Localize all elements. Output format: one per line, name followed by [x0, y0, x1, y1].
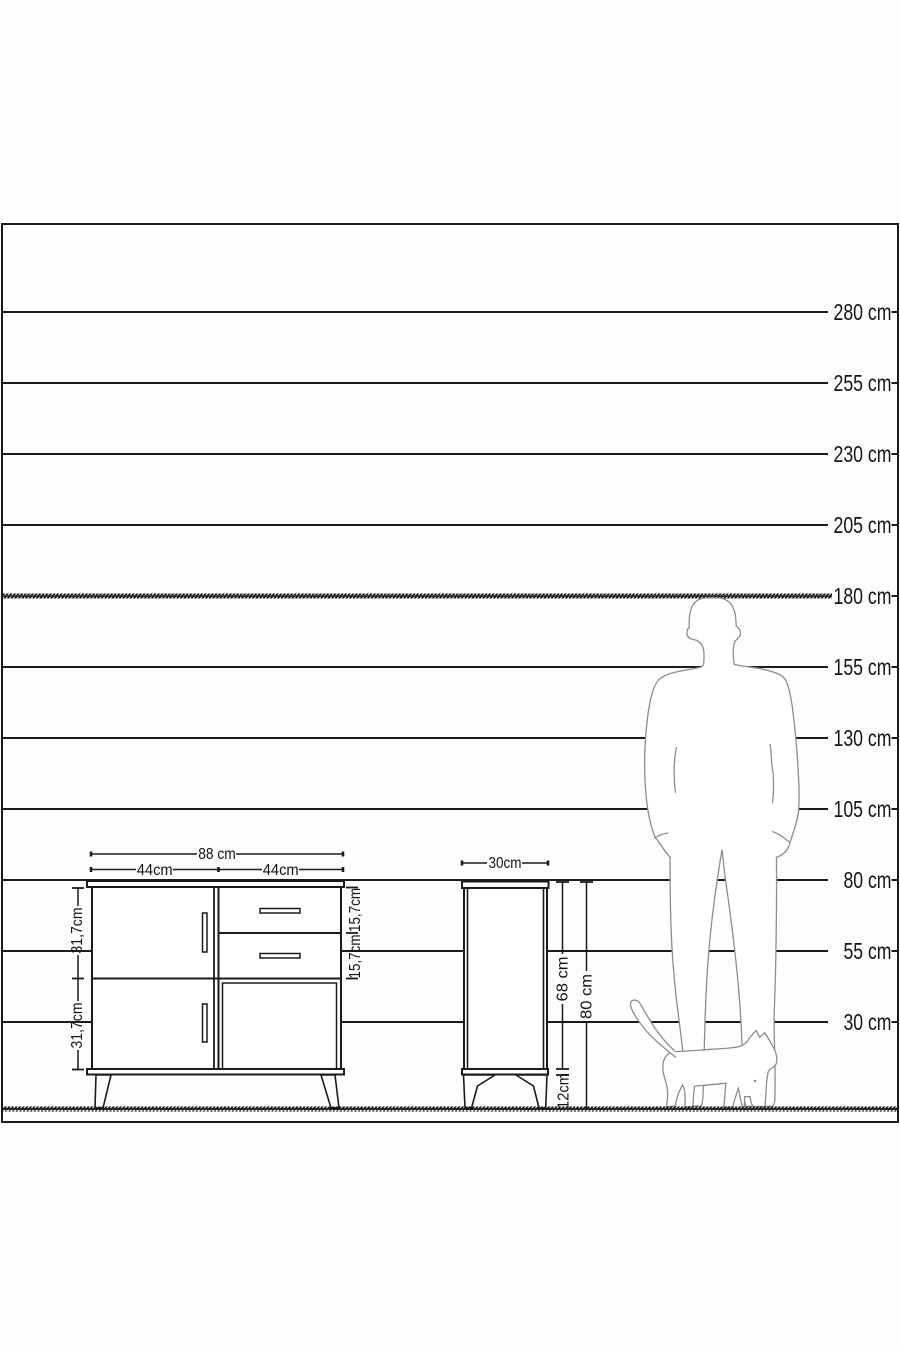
- svg-text:30cm: 30cm: [489, 855, 522, 872]
- svg-text:68 cm: 68 cm: [555, 957, 572, 1002]
- svg-text:255 cm: 255 cm: [834, 370, 892, 396]
- svg-text:80 cm: 80 cm: [579, 974, 596, 1019]
- svg-text:31,7cm: 31,7cm: [69, 908, 86, 954]
- svg-text:55 cm: 55 cm: [844, 938, 892, 964]
- svg-text:280 cm: 280 cm: [834, 299, 892, 325]
- svg-text:30 cm: 30 cm: [844, 1009, 892, 1035]
- svg-text:44cm: 44cm: [137, 862, 173, 879]
- svg-text:12cm: 12cm: [556, 1073, 573, 1109]
- svg-text:88 cm: 88 cm: [198, 846, 236, 863]
- svg-text:80 cm: 80 cm: [844, 867, 892, 893]
- svg-text:180 cm: 180 cm: [834, 583, 892, 609]
- svg-text:205 cm: 205 cm: [834, 512, 892, 538]
- svg-text:155 cm: 155 cm: [834, 654, 892, 680]
- svg-text:15,7cm: 15,7cm: [347, 888, 364, 932]
- svg-text:31,7cm: 31,7cm: [69, 1003, 86, 1049]
- svg-text:105 cm: 105 cm: [834, 796, 892, 822]
- svg-text:15,7cm: 15,7cm: [347, 935, 364, 979]
- svg-text:130 cm: 130 cm: [834, 725, 892, 751]
- svg-text:230 cm: 230 cm: [834, 441, 892, 467]
- svg-text:44cm: 44cm: [263, 862, 299, 879]
